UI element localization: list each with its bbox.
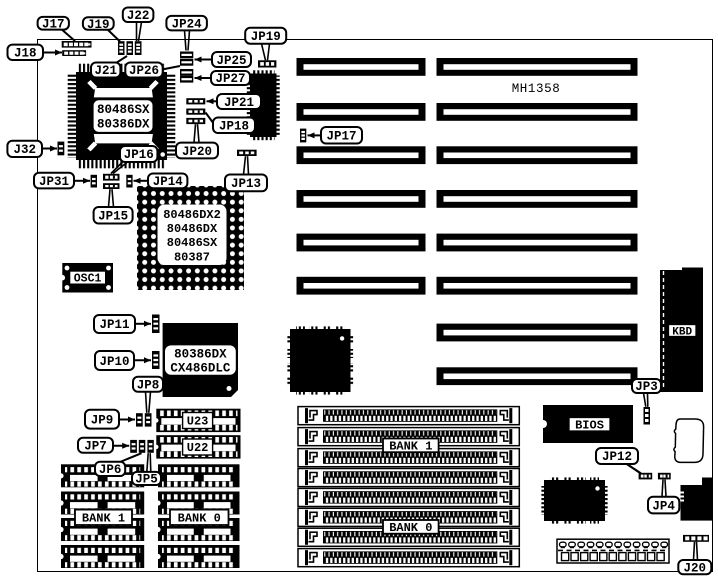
svg-text:U22: U22	[187, 441, 209, 455]
svg-text:CX486DLC: CX486DLC	[170, 362, 231, 376]
svg-text:MH1358: MH1358	[512, 82, 561, 96]
svg-text:JP16: JP16	[124, 148, 154, 162]
svg-text:J19: J19	[87, 18, 110, 32]
svg-text:J32: J32	[13, 143, 36, 157]
svg-text:U23: U23	[187, 415, 209, 429]
svg-text:JP21: JP21	[224, 96, 254, 110]
svg-text:J17: J17	[42, 18, 65, 32]
svg-text:JP6: JP6	[99, 463, 122, 477]
svg-text:JP18: JP18	[219, 120, 249, 134]
svg-text:JP10: JP10	[99, 355, 129, 369]
svg-text:J18: J18	[14, 47, 37, 61]
svg-text:80486SX: 80486SX	[97, 103, 150, 117]
svg-text:JP25: JP25	[216, 54, 246, 68]
svg-text:80486DX: 80486DX	[167, 222, 218, 236]
svg-text:JP27: JP27	[215, 72, 245, 86]
svg-text:J22: J22	[127, 9, 150, 23]
svg-text:80386DX: 80386DX	[174, 348, 227, 362]
svg-text:80386DX: 80386DX	[97, 118, 150, 132]
svg-text:JP31: JP31	[39, 175, 69, 189]
svg-text:JP14: JP14	[153, 175, 184, 189]
svg-text:JP17: JP17	[326, 130, 356, 144]
svg-text:BANK 1: BANK 1	[389, 439, 432, 453]
svg-text:JP24: JP24	[172, 17, 203, 31]
svg-text:BIOS: BIOS	[575, 418, 604, 432]
svg-text:KBD: KBD	[672, 326, 692, 338]
svg-text:JP7: JP7	[84, 440, 107, 454]
svg-text:JP8: JP8	[137, 379, 160, 393]
svg-text:JP11: JP11	[99, 318, 129, 332]
svg-text:OSC1: OSC1	[74, 273, 102, 286]
svg-text:JP3: JP3	[635, 380, 658, 394]
svg-text:80486DX2: 80486DX2	[163, 208, 221, 222]
svg-text:JP19: JP19	[251, 30, 281, 44]
svg-text:BANK 1: BANK 1	[82, 511, 125, 525]
svg-text:BANK 0: BANK 0	[178, 511, 221, 525]
svg-text:JP13: JP13	[231, 177, 261, 191]
svg-text:80387: 80387	[174, 250, 210, 264]
svg-text:BANK 0: BANK 0	[389, 521, 432, 535]
svg-text:JP20: JP20	[182, 145, 212, 159]
svg-text:80486SX: 80486SX	[167, 236, 218, 250]
svg-text:J21: J21	[94, 64, 117, 78]
svg-text:JP9: JP9	[91, 414, 114, 428]
svg-text:JP5: JP5	[135, 473, 158, 487]
svg-text:JP12: JP12	[602, 450, 632, 464]
svg-text:JP26: JP26	[129, 64, 159, 78]
svg-text:JP15: JP15	[98, 210, 128, 224]
svg-text:J20: J20	[684, 561, 707, 575]
svg-text:JP4: JP4	[652, 499, 675, 513]
